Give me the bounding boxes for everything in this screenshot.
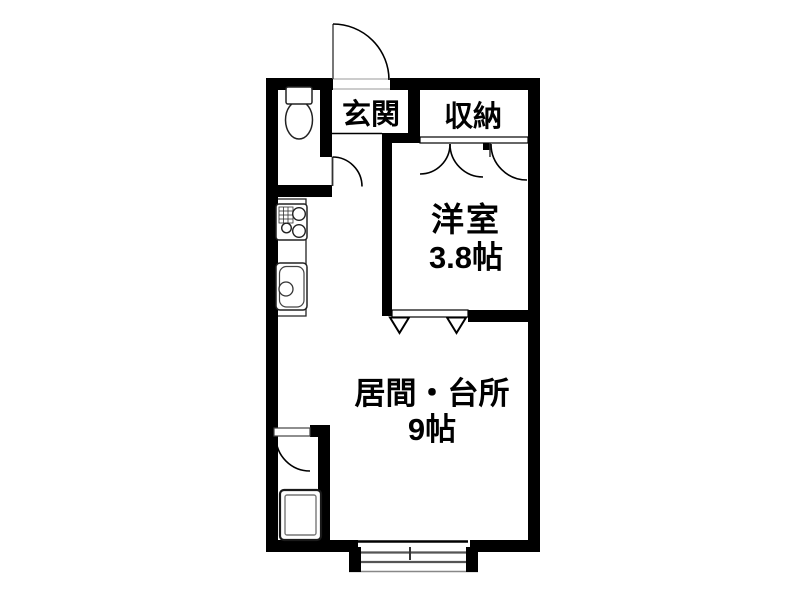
wall-left-outer	[266, 78, 278, 552]
room-label-living-kitchen: 居間・台所	[355, 376, 510, 411]
wall-bottom-right	[470, 540, 540, 552]
wall-bottom-left	[266, 540, 358, 552]
kitchen-sink-icon	[276, 263, 307, 310]
stove-burner-top	[293, 208, 306, 221]
room-label-western-room: 洋室	[431, 201, 501, 238]
floorplan-svg: 玄関 収納 洋室 3.8帖 居間・台所 9帖	[0, 0, 800, 600]
stove-burner-bottom	[293, 225, 306, 238]
toilet-icon	[286, 87, 313, 139]
folding-door-track	[392, 310, 468, 317]
sink-drain	[279, 282, 293, 296]
toilet-tank	[286, 87, 312, 104]
room-label-genkan: 玄関	[342, 97, 400, 131]
bathtub-icon	[280, 490, 321, 540]
window-cap-right	[466, 547, 478, 572]
bathroom-door-leaf	[274, 428, 310, 436]
wall-western-room-left	[382, 133, 392, 316]
closet-bottom-track	[420, 137, 528, 143]
window-cap-left	[349, 547, 361, 572]
gas-stove-icon	[276, 204, 307, 240]
wall-toilet-bottom	[266, 185, 332, 197]
stove-burner-small	[282, 223, 292, 233]
wall-western-room-bottom	[468, 310, 540, 322]
wall-top-right	[390, 78, 540, 90]
floorplan-page: 玄関 収納 洋室 3.8帖 居間・台所 9帖	[0, 0, 800, 600]
toilet-bowl	[286, 101, 313, 139]
wall-toilet-right	[320, 90, 332, 157]
room-size-western-room: 3.8帖	[429, 240, 503, 275]
room-label-closet: 収納	[444, 99, 502, 133]
room-size-living-kitchen: 9帖	[408, 412, 456, 447]
bathtub-outer	[280, 490, 321, 540]
